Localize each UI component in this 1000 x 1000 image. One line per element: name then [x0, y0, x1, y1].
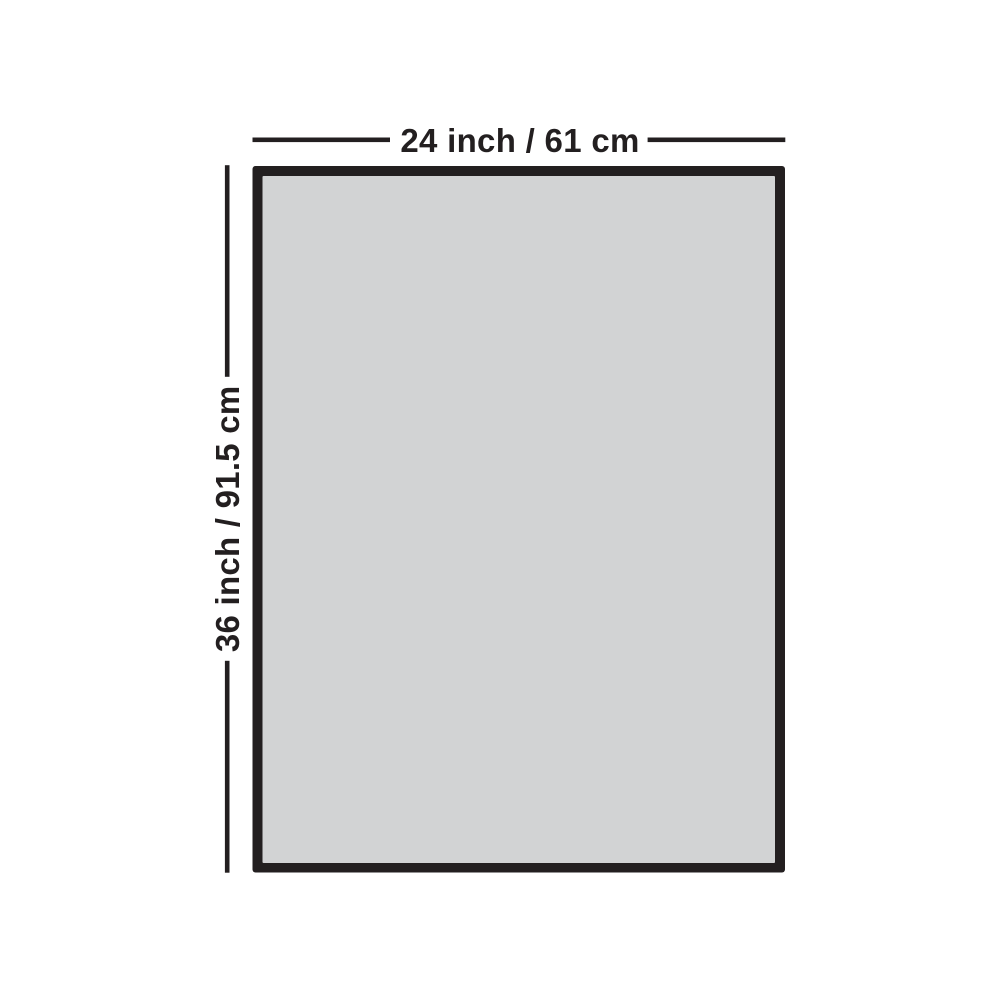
svg-text:24 inch / 61 cm: 24 inch / 61 cm	[400, 122, 639, 159]
svg-text:36 inch / 91.5 cm: 36 inch / 91.5 cm	[209, 386, 246, 653]
